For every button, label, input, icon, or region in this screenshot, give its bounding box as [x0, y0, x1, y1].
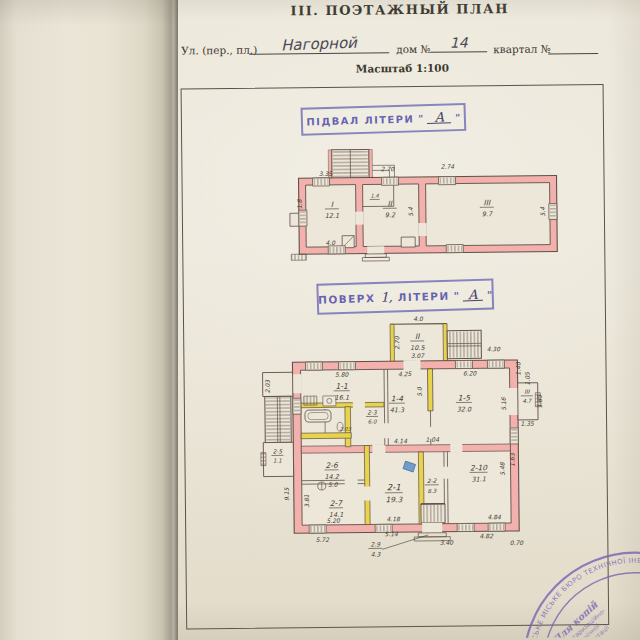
basement-stamp-label: ПІДВАЛ ЛІТЕРИ	[306, 113, 414, 127]
photographed-document: III. ПОЭТАЖНЫЙ ПЛАН Ул. (пер., пл.) Наго…	[0, 0, 640, 640]
basement-stamp: ПІДВАЛ ЛІТЕРИ " А "	[301, 103, 467, 136]
quote-mark: "	[455, 112, 461, 123]
house-label: дом №	[396, 43, 430, 55]
street-value: Нагорной	[281, 34, 357, 55]
basement-stamp-letter: А	[427, 111, 451, 124]
house-field: 14	[430, 32, 487, 53]
street-field: Нагорной	[249, 33, 389, 54]
book-page-stack-edge	[0, 0, 178, 640]
floor1-stamp-word1: ПОВЕРХ	[318, 291, 375, 305]
page-title: III. ПОЭТАЖНЫЙ ПЛАН	[230, 0, 570, 19]
quote-mark: "	[418, 113, 424, 124]
plan-frame-border	[181, 84, 610, 629]
stamp-line: документації	[574, 623, 611, 640]
quote-mark: "	[453, 289, 459, 301]
scale-label: Масштаб 1:100	[317, 61, 487, 75]
block-label: квартал №	[493, 43, 551, 56]
floor1-stamp-word2: ЛІТЕРИ	[397, 289, 449, 303]
street-label: Ул. (пер., пл.)	[181, 44, 257, 57]
house-value: 14	[450, 34, 468, 50]
floor1-stamp-number: 1,	[379, 291, 394, 302]
block-field-empty	[548, 39, 598, 55]
quote-mark: "	[487, 288, 493, 300]
floor1-stamp: ПОВЕРХ 1, ЛІТЕРИ " А "	[316, 278, 494, 314]
floor1-stamp-letter: А	[463, 288, 483, 301]
